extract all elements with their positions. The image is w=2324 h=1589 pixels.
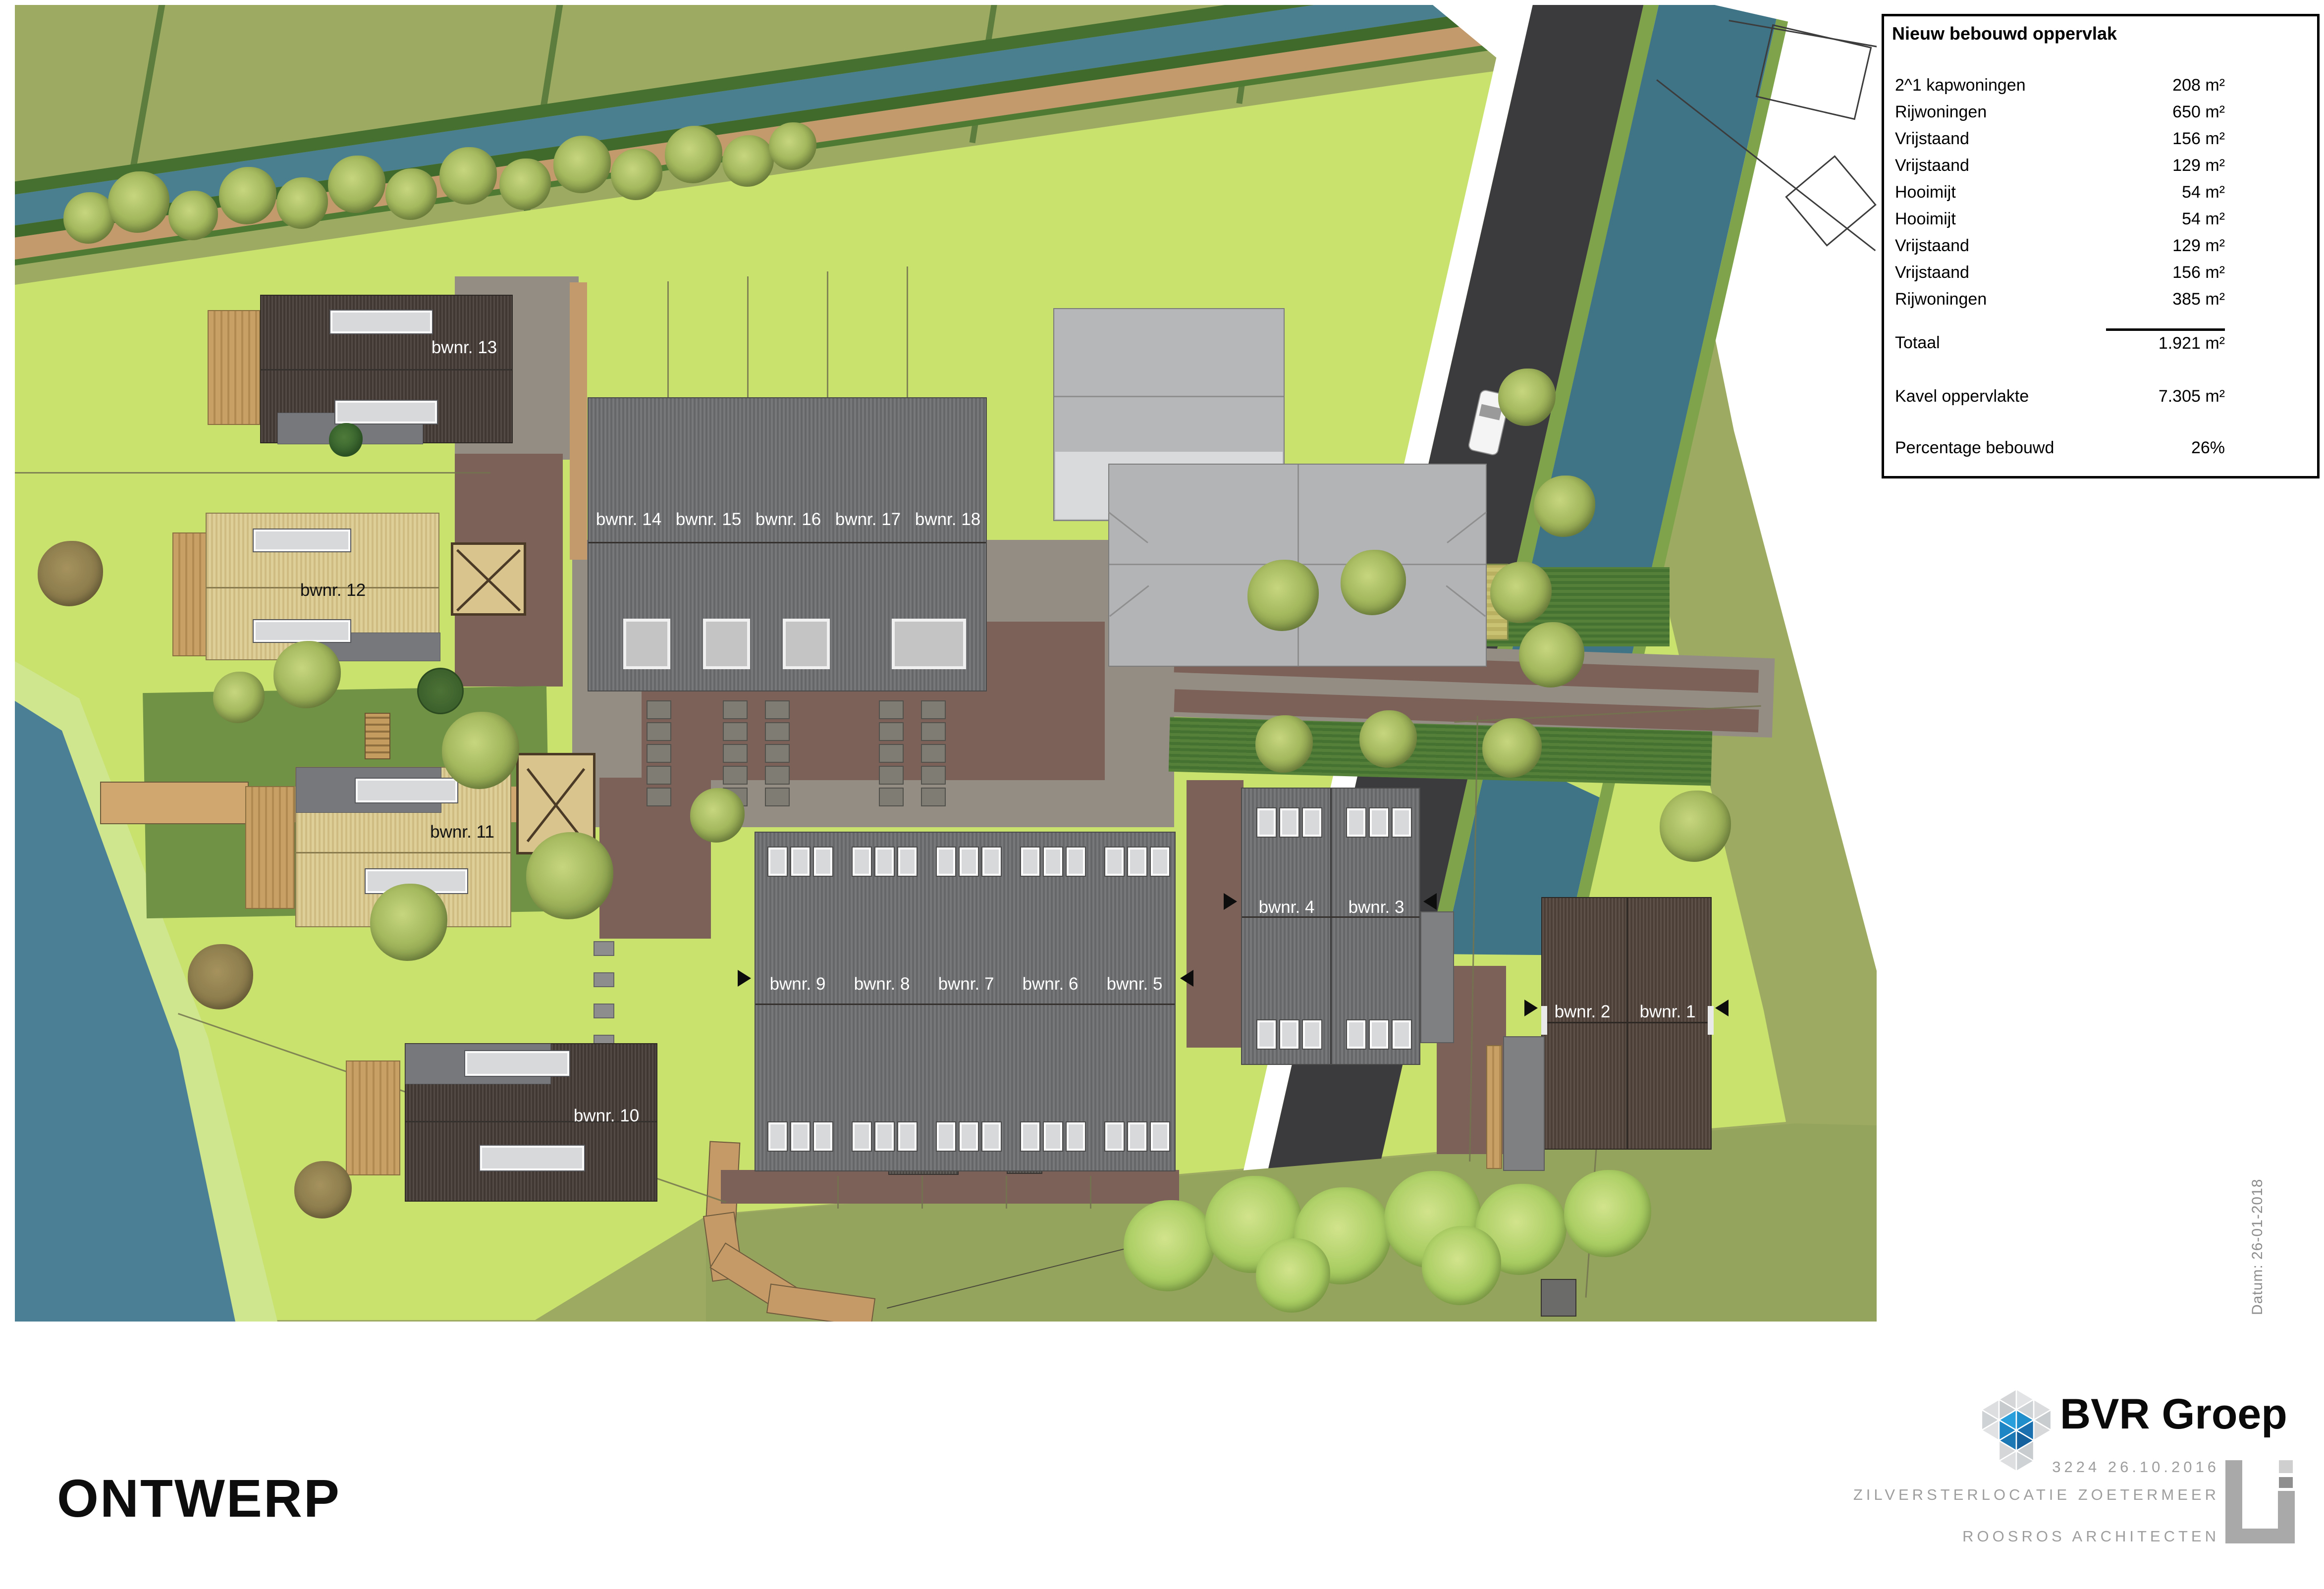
window: [1303, 1020, 1321, 1049]
window: [1303, 808, 1321, 837]
rooflight: [254, 530, 350, 551]
house-bwnr-10: bwnr. 10: [405, 1043, 657, 1202]
window: [982, 1122, 1001, 1151]
garden-shed: [1541, 1279, 1576, 1317]
building-label: bwnr. 12: [293, 581, 373, 600]
row-value: 208 m²: [2106, 76, 2225, 95]
semidetached-bwnr-3-4: bwnr. 4 bwnr. 3: [1241, 788, 1420, 1065]
garage-door: [783, 619, 830, 669]
parking-stall: [921, 744, 946, 763]
window: [1151, 1122, 1169, 1151]
window: [1044, 1122, 1062, 1151]
entrance-arrow: [1715, 1000, 1729, 1016]
building-label: bwnr. 15: [671, 510, 746, 530]
dormer-windows: [1105, 1122, 1169, 1151]
path-edge: [570, 282, 587, 560]
window: [875, 847, 894, 876]
rooflight: [356, 779, 457, 802]
window: [898, 1122, 917, 1151]
row-value: 156 m²: [2106, 263, 2225, 282]
window: [791, 847, 810, 876]
rooflight: [330, 311, 432, 333]
project-name: ZILVERSTERLOCATIE ZOETERMEER: [1853, 1486, 2219, 1504]
barn-hip-line: [1109, 585, 1149, 617]
building-label: bwnr. 13: [425, 338, 504, 358]
dormer-windows: [1021, 1122, 1085, 1151]
row-value: 650 m²: [2106, 103, 2225, 122]
project-code-date: 3224 26.10.2016: [2052, 1458, 2219, 1476]
garage-door: [892, 619, 966, 669]
boardwalk: [100, 782, 249, 824]
parcel-label: Kavel oppervlakte: [1895, 387, 2029, 406]
dormer-windows: [1347, 808, 1411, 837]
building-label: bwnr. 18: [911, 510, 985, 530]
window: [937, 847, 955, 876]
design-stamp: ONTWERP: [57, 1467, 341, 1529]
table-title: Nieuw bebouwd oppervlak: [1892, 23, 2117, 44]
building-label: bwnr. 4: [1249, 898, 1324, 917]
date-stamp: Datum: 26-01-2018: [2249, 1102, 2266, 1315]
barn-hip-line: [1108, 512, 1148, 543]
parking-stall: [647, 722, 671, 741]
parking-stall: [647, 700, 671, 719]
terrace-deck: [1486, 1045, 1502, 1169]
parking-stall: [921, 722, 946, 741]
parking-stall: [723, 766, 748, 785]
entrance-arrow: [1524, 1000, 1538, 1016]
house-bwnr-12: bwnr. 12: [206, 513, 439, 660]
hooimijt: [451, 542, 526, 616]
row-value: 129 m²: [2106, 156, 2225, 175]
dormer-windows: [1021, 847, 1085, 876]
row-value: 156 m²: [2106, 129, 2225, 149]
window: [1347, 808, 1365, 837]
barn-hip-line: [1446, 585, 1486, 617]
roof-ridge: [1542, 1022, 1711, 1023]
parcel-line: [907, 266, 908, 400]
building-label: bwnr. 1: [1630, 1002, 1705, 1022]
window: [1370, 808, 1388, 837]
entrance-arrow: [1423, 893, 1437, 910]
building-label: bwnr. 6: [1013, 974, 1087, 994]
parking-stall: [879, 766, 904, 785]
window: [853, 847, 871, 876]
parking-stall: [723, 722, 748, 741]
row-label: Vrijstaand: [1895, 156, 1969, 175]
window: [1347, 1020, 1365, 1049]
dormer-windows: [937, 1122, 1001, 1151]
parking-stall: [765, 766, 790, 785]
garage-extension: [1420, 911, 1454, 1043]
parking-stall: [647, 788, 671, 806]
rooflight: [335, 401, 437, 424]
roof-ridge: [756, 1004, 1175, 1005]
dormer-windows: [1257, 808, 1321, 837]
stepping-stone: [594, 972, 614, 987]
terrace-deck: [346, 1060, 400, 1175]
barn-roofline: [1054, 396, 1284, 397]
dormer-windows: [768, 847, 832, 876]
parking-stall: [723, 744, 748, 763]
roof-ridge: [589, 542, 986, 543]
parcel-line: [1090, 1176, 1091, 1209]
entrance-arrow: [1180, 970, 1193, 987]
row-label: 2^1 kapwoningen: [1895, 76, 2026, 95]
terrace-deck: [208, 310, 260, 425]
window: [1151, 847, 1169, 876]
building-label: bwnr. 16: [751, 510, 825, 530]
parcel-line: [827, 271, 828, 400]
terrace-deck: [245, 786, 295, 909]
window: [1393, 1020, 1411, 1049]
semidetached-bwnr-1-2: bwnr. 2 bwnr. 1: [1541, 897, 1712, 1150]
window: [937, 1122, 955, 1151]
window: [1257, 1020, 1276, 1049]
row-value: 54 m²: [2106, 210, 2225, 229]
window: [1067, 847, 1085, 876]
window: [875, 1122, 894, 1151]
plot-driveway: [1187, 780, 1243, 1048]
rooflight: [465, 1051, 569, 1076]
window: [1280, 1020, 1298, 1049]
side-trim: [1708, 1006, 1714, 1035]
garage-extension: [1503, 1036, 1545, 1171]
stepping-stone: [594, 1004, 614, 1018]
picnic-table: [365, 713, 390, 759]
rowhouses-bwnr-14-18: bwnr. 14 bwnr. 15 bwnr. 16 bwnr. 17 bwnr…: [588, 397, 987, 691]
dormer-windows: [853, 1122, 917, 1151]
parking-stall: [765, 700, 790, 719]
logo-square-dark: [2279, 1477, 2293, 1488]
entrance-arrow: [738, 970, 751, 987]
parcel-line: [667, 281, 669, 400]
coverage-value: 26%: [2106, 438, 2225, 458]
roof-ridge: [296, 852, 510, 853]
window: [814, 1122, 832, 1151]
row-label: Hooimijt: [1895, 183, 1956, 202]
entrance-arrow: [1224, 893, 1237, 910]
window: [1021, 847, 1039, 876]
parking-stall: [765, 722, 790, 741]
parking-stall: [921, 766, 946, 785]
house-bwnr-13: bwnr. 13: [260, 295, 513, 443]
dormer-windows: [1347, 1020, 1411, 1049]
window: [853, 1122, 871, 1151]
parcel-line: [1006, 1176, 1007, 1209]
building-label: bwnr. 3: [1339, 898, 1413, 917]
row-label: Vrijstaand: [1895, 263, 1969, 282]
page: { "table": { "title": "Nieuw bebouwd opp…: [0, 0, 2324, 1589]
building-label: bwnr. 14: [592, 510, 666, 530]
window: [982, 847, 1001, 876]
dormer-windows: [937, 847, 1001, 876]
party-wall-line: [1330, 789, 1332, 1064]
parking-stall: [723, 700, 748, 719]
window: [1021, 1122, 1039, 1151]
bvr-cube-logo-icon: [1977, 1384, 2056, 1476]
row-label: Rijwoningen: [1895, 103, 1987, 122]
row-label: Rijwoningen: [1895, 290, 1987, 309]
building-label: bwnr. 10: [564, 1106, 649, 1126]
parking-stall: [647, 744, 671, 763]
window: [1105, 1122, 1124, 1151]
rowhouses-bwnr-5-9: bwnr. 9 bwnr. 8 bwnr. 7 bwnr. 6 bwnr. 5: [755, 832, 1176, 1171]
coverage-label: Percentage bebouwd: [1895, 438, 2054, 458]
parking-stall: [879, 722, 904, 741]
terrace-deck: [172, 532, 208, 656]
site-plan-map: bwnr. 13 bwnr. 12 bwnr. 14 bwnr. 15 bwnr…: [15, 5, 1877, 1322]
parking-stall: [765, 744, 790, 763]
roosros-bracket-logo-icon: [2225, 1460, 2295, 1543]
parking-stall: [921, 700, 946, 719]
building-label: bwnr. 7: [929, 974, 1003, 994]
window: [1280, 808, 1298, 837]
row-value: 54 m²: [2106, 183, 2225, 202]
gazebo: [417, 668, 464, 714]
garage-door: [623, 619, 670, 669]
window: [768, 1122, 787, 1151]
building-label: bwnr. 5: [1097, 974, 1172, 994]
parcel-line: [747, 276, 749, 400]
row-label: Hooimijt: [1895, 210, 1956, 229]
roof-ridge: [261, 369, 512, 371]
window: [791, 1122, 810, 1151]
parking-stall: [879, 788, 904, 806]
building-label: bwnr. 8: [845, 974, 919, 994]
row-value: 129 m²: [2106, 236, 2225, 256]
window: [1067, 1122, 1085, 1151]
total-label: Totaal: [1895, 333, 1940, 353]
window: [1128, 1122, 1146, 1151]
parking-stall: [879, 744, 904, 763]
window: [1105, 847, 1124, 876]
total-value: 1.921 m²: [2106, 328, 2225, 353]
row-label: Vrijstaand: [1895, 129, 1969, 149]
window: [960, 847, 978, 876]
rooflight: [254, 620, 350, 642]
parking-stall: [765, 788, 790, 806]
rear-path: [721, 1170, 1179, 1204]
parcel-value: 7.305 m²: [2106, 387, 2225, 406]
window: [1044, 847, 1062, 876]
stepping-stone: [594, 941, 614, 956]
building-label: bwnr. 2: [1545, 1002, 1620, 1022]
window: [1370, 1020, 1388, 1049]
dormer-windows: [1257, 1020, 1321, 1049]
parking-stall: [879, 700, 904, 719]
window: [1257, 808, 1276, 837]
window: [960, 1122, 978, 1151]
car-windshield: [1479, 404, 1502, 421]
party-wall-line: [1626, 898, 1628, 1149]
parcel-line: [15, 472, 490, 474]
logo-bar-right: [2278, 1491, 2295, 1536]
parcel-line: [921, 1176, 923, 1209]
row-value: 385 m²: [2106, 290, 2225, 309]
building-label: bwnr. 9: [760, 974, 835, 994]
garage-door: [703, 619, 750, 669]
area-summary-table: Nieuw bebouwd oppervlak 2^1 kapwoningen2…: [1882, 14, 2320, 478]
window: [1393, 808, 1411, 837]
dormer-windows: [1105, 847, 1169, 876]
window: [898, 847, 917, 876]
dormer-windows: [768, 1122, 832, 1151]
row-label: Vrijstaand: [1895, 236, 1969, 256]
window: [1128, 847, 1146, 876]
parcel-line: [837, 1176, 839, 1209]
building-label: bwnr. 11: [420, 822, 504, 842]
dormer-windows: [853, 847, 917, 876]
building-label: bwnr. 17: [831, 510, 905, 530]
logo-square-light: [2279, 1460, 2293, 1473]
window: [814, 847, 832, 876]
parking-stall: [921, 788, 946, 806]
parking-stall: [647, 766, 671, 785]
window: [768, 847, 787, 876]
architect-name: ROOSROS ARCHITECTEN: [1962, 1528, 2219, 1545]
rooflight: [480, 1146, 584, 1170]
barn-hip-line: [1447, 512, 1487, 543]
company-name: BVR Groep: [2060, 1390, 2287, 1439]
